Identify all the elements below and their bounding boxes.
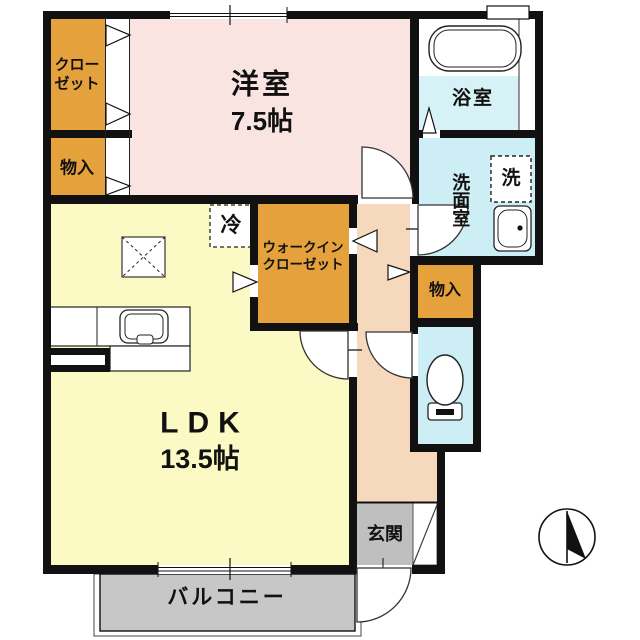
western-room-size: 7.5帖 bbox=[231, 105, 293, 138]
compass bbox=[539, 509, 595, 565]
storage-right-label: 物入 bbox=[429, 281, 461, 301]
storage-left-label: 物入 bbox=[60, 157, 94, 178]
ldk-size: 13.5帖 bbox=[160, 443, 240, 477]
ldk-label: LDK bbox=[151, 404, 249, 442]
bathroom-label: 浴室 bbox=[452, 87, 494, 111]
washing-machine-label: 洗 bbox=[501, 167, 520, 191]
closet-label-line1: クロー bbox=[54, 56, 99, 75]
entrance-label: 玄関 bbox=[367, 523, 403, 546]
door-marker-closet-bottom bbox=[106, 103, 130, 125]
room-hallway-lower bbox=[409, 452, 437, 503]
closet-label: クロー ゼット bbox=[54, 56, 99, 94]
western-room-label: 洋室 bbox=[231, 67, 293, 102]
door-marker-closet-top bbox=[106, 25, 130, 46]
washroom-label: 洗面室 bbox=[449, 173, 472, 227]
door-arc-entrance bbox=[357, 568, 411, 622]
entrance-porch bbox=[413, 503, 437, 565]
wic-label: ウォークイン クローゼット bbox=[263, 240, 344, 274]
balcony-label: バルコニー bbox=[167, 585, 287, 611]
window-bathroom bbox=[487, 6, 529, 19]
closet-label-line2: ゼット bbox=[54, 75, 99, 94]
refrigerator-label: 冷 bbox=[221, 213, 242, 239]
wic-label-line1: ウォークイン bbox=[263, 240, 344, 257]
toilet-fixture bbox=[427, 355, 463, 420]
door-marker-storage-left bbox=[106, 177, 130, 195]
washbasin bbox=[494, 206, 531, 251]
floor-plan: クロー ゼット 物入 洋室 7.5帖 浴室 洗 洗面室 物入 ウォークイン クロ… bbox=[0, 0, 640, 640]
kitchen-counter bbox=[43, 307, 190, 372]
ceiling-hatch bbox=[122, 237, 165, 277]
wic-label-line2: クローゼット bbox=[263, 257, 344, 274]
floor-plan-drawing bbox=[0, 0, 640, 640]
